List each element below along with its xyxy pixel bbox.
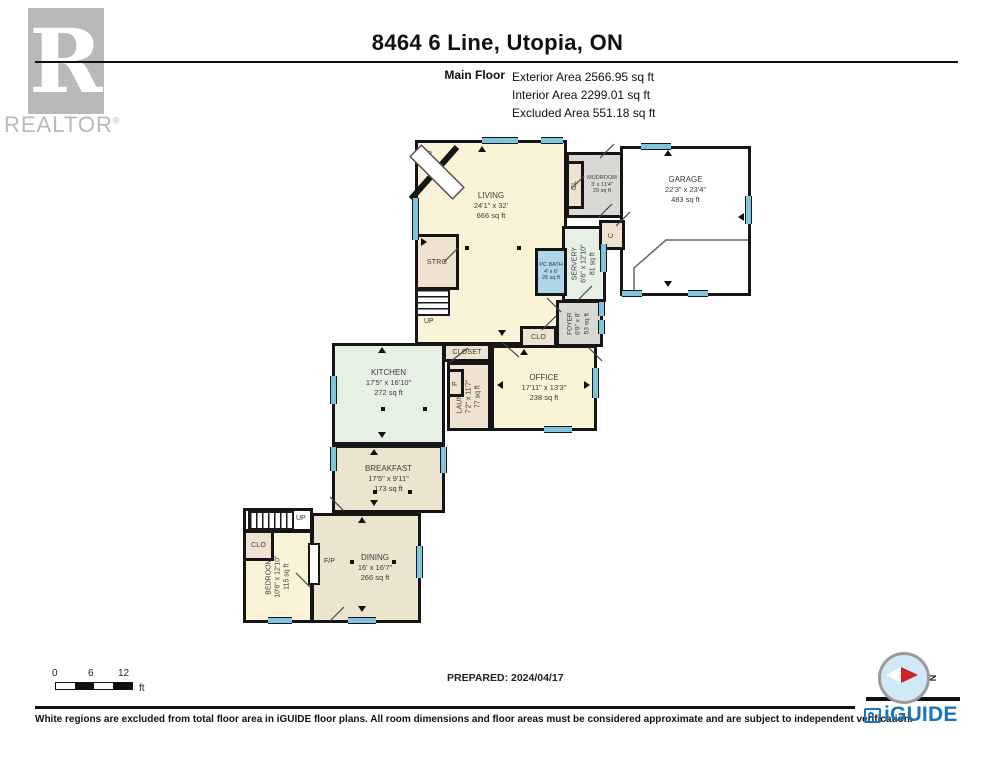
window-icon xyxy=(412,198,419,240)
window-icon xyxy=(641,143,671,150)
dimension-arrow-icon xyxy=(378,432,386,438)
dimension-marker xyxy=(517,246,521,250)
window-icon xyxy=(482,137,518,144)
closet-p: P xyxy=(447,369,464,397)
room-office-label: OFFICE 17'11" x 13'3" 238 sq ft xyxy=(522,373,567,403)
closet-c-label: C xyxy=(608,232,615,237)
window-icon xyxy=(268,617,292,624)
room-office: OFFICE 17'11" x 13'3" 238 sq ft xyxy=(491,345,597,431)
room-living-label: LIVING 24'1" x 32' 666 sq ft xyxy=(474,191,508,221)
scale-tick-6: 6 xyxy=(88,668,94,679)
compass-icon xyxy=(878,652,930,704)
room-kitchen-label: KITCHEN 17'5" x 16'10" 272 sq ft xyxy=(366,368,411,398)
closet-cl: CL xyxy=(566,161,584,209)
closet-clo-bedroom-label: CLO xyxy=(251,542,266,549)
closet-clo-bedroom: CLO xyxy=(243,530,274,561)
scale-unit: ft xyxy=(139,683,145,694)
dimension-marker xyxy=(350,560,354,564)
compass-needle-white xyxy=(886,667,901,683)
dimension-arrow-icon xyxy=(738,213,744,221)
room-pc-bath-label: PC BATH 4' x 6' 26 sq ft xyxy=(539,262,562,282)
room-pc-bath: PC BATH 4' x 6' 26 sq ft xyxy=(535,248,567,296)
scale-bar xyxy=(55,682,133,690)
camera-lens-icon xyxy=(868,712,874,718)
room-mudroom-label: MUDROOM 3' x 11'4" 29 sq ft xyxy=(587,175,617,195)
closet-cl-label: CL xyxy=(571,180,578,189)
closet-clo-foyer: CLO xyxy=(520,326,557,348)
dimension-arrow-icon xyxy=(497,381,503,389)
window-icon xyxy=(598,302,605,316)
dimension-marker xyxy=(408,490,412,494)
dimension-arrow-icon xyxy=(370,449,378,455)
window-icon xyxy=(416,546,423,578)
dimension-arrow-icon xyxy=(664,150,672,156)
camera-icon xyxy=(864,708,881,723)
dimension-marker xyxy=(392,560,396,564)
room-breakfast-label: BREAKFAST 17'5" x 9'11" 173 sq ft xyxy=(365,464,412,494)
excluded-area: Excluded Area 551.18 sq ft xyxy=(512,104,655,122)
dimension-marker xyxy=(465,246,469,250)
dimension-marker xyxy=(381,407,385,411)
window-icon xyxy=(592,368,599,398)
page-title: 8464 6 Line, Utopia, ON xyxy=(0,30,995,56)
dimension-arrow-icon xyxy=(378,347,386,353)
dimension-arrow-icon xyxy=(370,500,378,506)
fireplace-label-living: F/P xyxy=(421,151,432,158)
dimension-marker xyxy=(423,407,427,411)
window-icon xyxy=(330,447,337,471)
stairs-up xyxy=(416,288,450,316)
room-foyer-label: FOYER 6'9" x 8' 53 sq ft xyxy=(567,312,592,335)
disclaimer-text: White regions are excluded from total fl… xyxy=(35,714,913,725)
window-icon xyxy=(745,196,752,224)
window-icon xyxy=(440,447,447,473)
header-divider xyxy=(35,61,958,63)
room-servery-label: SERVERY 6'6" x 12'10" 81 sq ft xyxy=(570,245,597,283)
exterior-area: Exterior Area 2566.95 sq ft xyxy=(512,68,655,86)
dimension-arrow-icon xyxy=(498,330,506,336)
window-icon xyxy=(544,426,572,433)
area-stats: Exterior Area 2566.95 sq ft Interior Are… xyxy=(512,68,655,122)
compass-needle-red xyxy=(901,667,918,683)
stairs-up-2-label: UP xyxy=(296,515,306,522)
closet-p-label: P xyxy=(452,381,459,386)
closet-hall-label: CLOSET xyxy=(452,349,481,356)
dimension-arrow-icon xyxy=(421,238,427,246)
dimension-arrow-icon xyxy=(664,281,672,287)
room-bedroom-label: BEDROOM 10'6" x 12'10" 115 sq ft xyxy=(264,555,291,597)
scale-tick-12: 12 xyxy=(118,668,129,679)
iguide-logo: iGUIDE xyxy=(864,703,958,727)
stairs-up-label: UP xyxy=(424,318,434,325)
room-garage: GARAGE 22'3" x 23'4" 483 sq ft xyxy=(620,146,751,296)
window-icon xyxy=(600,244,607,272)
prepared-date: PREPARED: 2024/04/17 xyxy=(447,672,564,684)
window-icon xyxy=(541,137,563,144)
fireplace-label-dining: F/P xyxy=(324,558,335,565)
dimension-arrow-icon xyxy=(520,349,528,355)
footer-divider xyxy=(35,706,855,709)
closet-clo-foyer-label: CLO xyxy=(531,334,546,341)
realtor-logo-word: REALTOR® xyxy=(4,112,121,138)
fireplace-box xyxy=(308,543,320,585)
dimension-arrow-icon xyxy=(478,146,486,152)
room-dining: DINING 16' x 16'7" 266 sq ft xyxy=(311,513,421,623)
window-icon xyxy=(622,290,642,297)
dimension-arrow-icon xyxy=(358,606,366,612)
floor-label: Main Floor xyxy=(365,68,505,82)
room-dining-label: DINING 16' x 16'7" 266 sq ft xyxy=(358,553,392,583)
room-storage-label: STRG xyxy=(427,259,447,266)
iguide-logo-text: iGUIDE xyxy=(884,703,958,727)
stairs-up-2 xyxy=(248,511,294,530)
room-breakfast: BREAKFAST 17'5" x 9'11" 173 sq ft xyxy=(332,445,445,513)
window-icon xyxy=(348,617,376,624)
room-garage-label: GARAGE 22'3" x 23'4" 483 sq ft xyxy=(665,175,706,205)
room-foyer: FOYER 6'9" x 8' 53 sq ft xyxy=(556,300,603,347)
dimension-arrow-icon xyxy=(358,517,366,523)
registered-mark: ® xyxy=(113,116,121,126)
window-icon xyxy=(330,376,337,404)
window-icon xyxy=(688,290,708,297)
scale-tick-0: 0 xyxy=(52,668,58,679)
dimension-arrow-icon xyxy=(584,381,590,389)
window-icon xyxy=(598,320,605,334)
dimension-marker xyxy=(373,490,377,494)
room-kitchen: KITCHEN 17'5" x 16'10" 272 sq ft xyxy=(332,343,445,445)
interior-area: Interior Area 2299.01 sq ft xyxy=(512,86,655,104)
closet-hall: CLOSET xyxy=(443,343,491,362)
